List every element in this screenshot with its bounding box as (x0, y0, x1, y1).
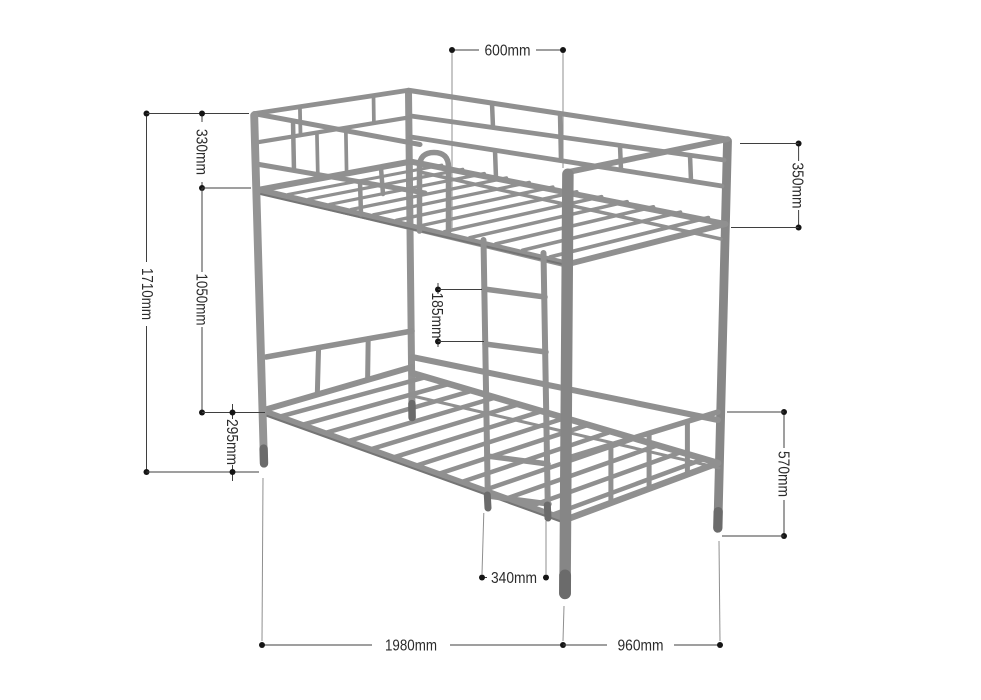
svg-text:1980mm: 1980mm (385, 638, 437, 655)
svg-text:185mm: 185mm (428, 293, 445, 339)
svg-text:295mm: 295mm (223, 419, 240, 465)
svg-text:1050mm: 1050mm (193, 274, 210, 326)
svg-text:1710mm: 1710mm (138, 268, 155, 320)
svg-text:340mm: 340mm (491, 570, 537, 587)
svg-text:330mm: 330mm (193, 129, 210, 175)
svg-text:350mm: 350mm (789, 163, 806, 209)
svg-text:570mm: 570mm (775, 451, 792, 497)
svg-text:600mm: 600mm (485, 43, 531, 60)
svg-text:960mm: 960mm (618, 638, 664, 655)
